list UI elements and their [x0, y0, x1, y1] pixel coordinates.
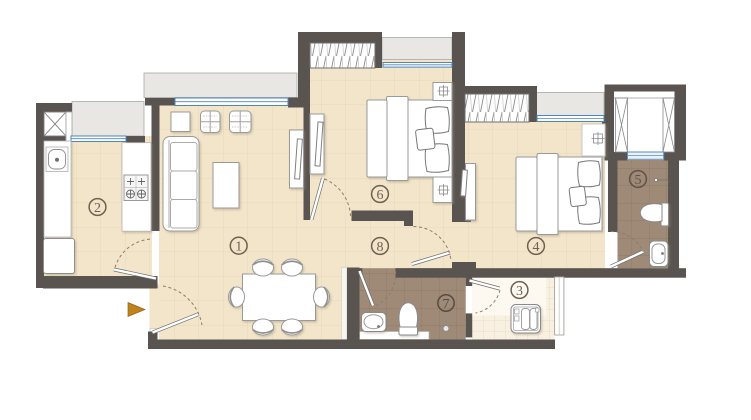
- svg-text:5: 5: [635, 173, 642, 188]
- svg-text:1: 1: [235, 240, 242, 255]
- svg-text:7: 7: [443, 297, 450, 312]
- svg-text:2: 2: [94, 201, 101, 216]
- svg-text:3: 3: [516, 284, 523, 299]
- svg-text:6: 6: [377, 188, 384, 203]
- svg-text:4: 4: [533, 240, 540, 255]
- svg-text:8: 8: [377, 240, 384, 255]
